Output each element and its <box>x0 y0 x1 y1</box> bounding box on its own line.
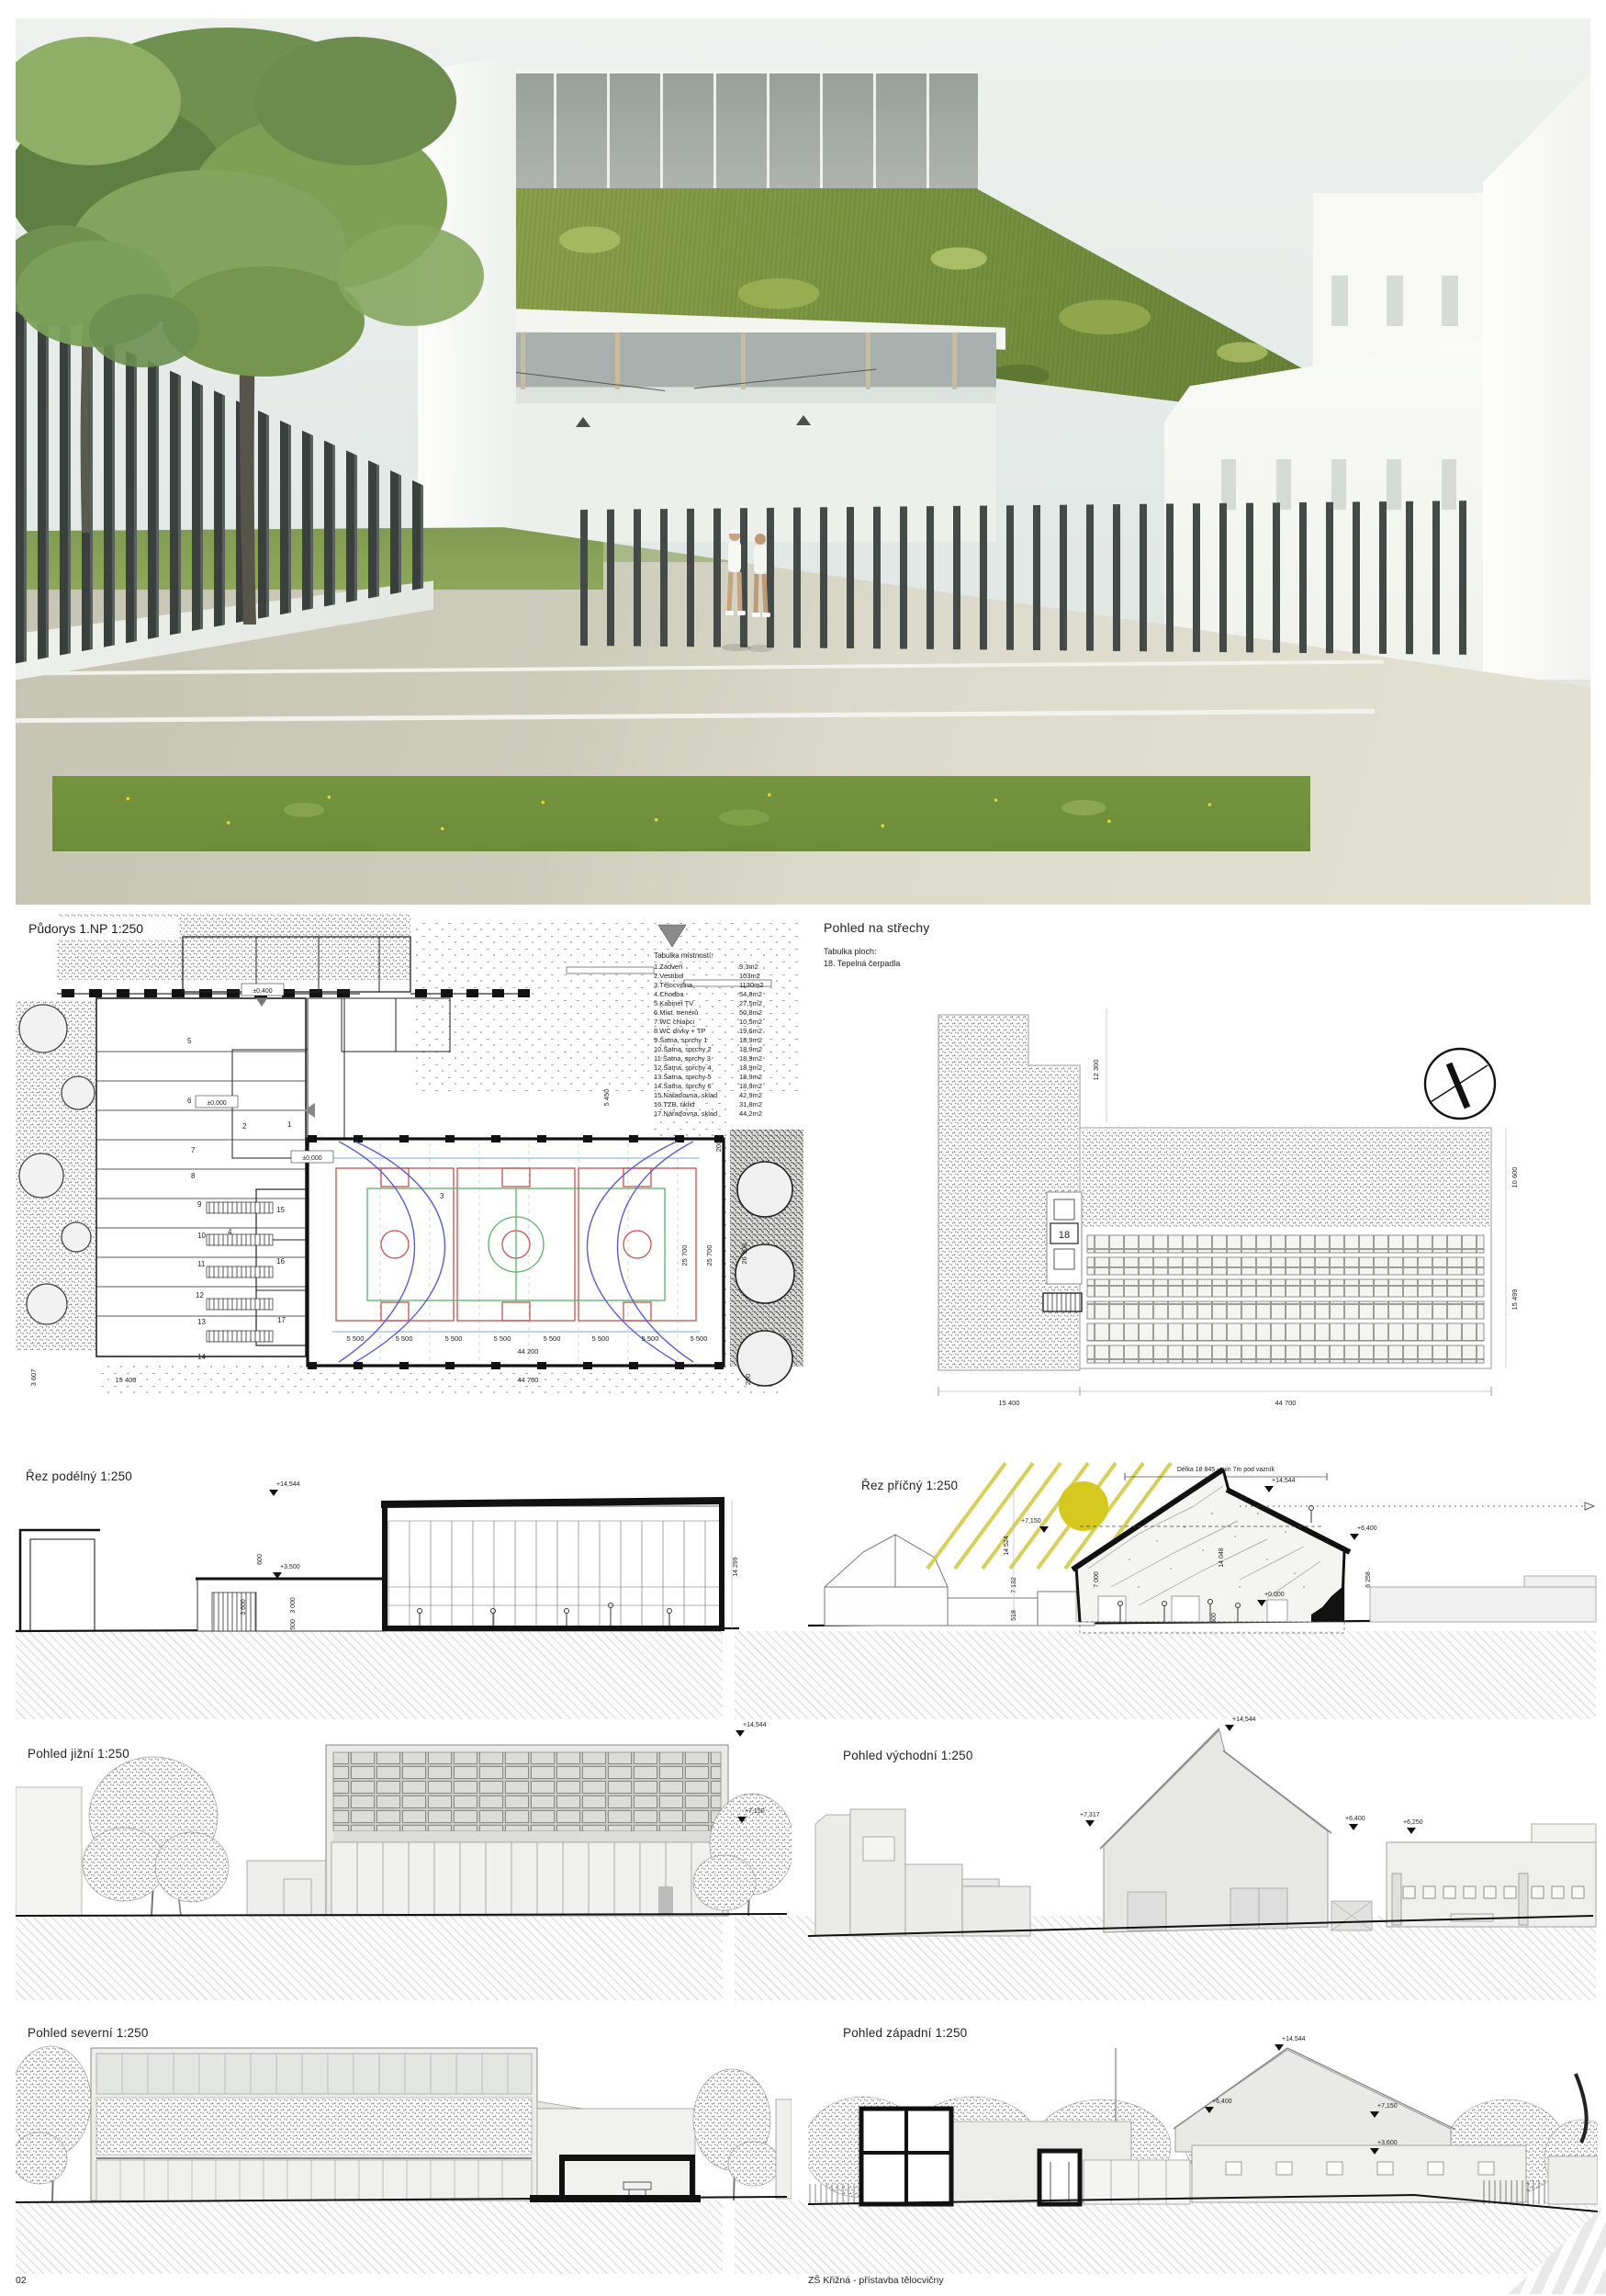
pendant-lamp-icon <box>576 417 590 427</box>
roof-plan-drawing: 18 12 300 10 600 15 499 15 400 44 700 <box>918 974 1602 1433</box>
svg-text:1130m2: 1130m2 <box>739 981 764 989</box>
presentation-sheet: ±0,400 ±0,000 ±0,000 12 34 56 78 910 111… <box>0 0 1606 2296</box>
svg-text:31,8m2: 31,8m2 <box>739 1100 762 1109</box>
svg-text:+14,544: +14,544 <box>1282 2036 1306 2043</box>
render-near-right-building <box>1483 73 1590 680</box>
svg-text:+0,000: +0,000 <box>1264 1592 1285 1598</box>
svg-text:18,9m2: 18,9m2 <box>739 1064 762 1072</box>
svg-text:7: 7 <box>191 1146 196 1154</box>
elevation-west-drawing: +14,544 +6,400 +7,150 +3,600 <box>808 1964 1598 2239</box>
svg-text:10: 10 <box>197 1232 206 1240</box>
svg-text:15 400: 15 400 <box>116 1376 137 1384</box>
svg-text:10 600: 10 600 <box>1511 1167 1519 1188</box>
svg-text:5 500: 5 500 <box>396 1334 413 1343</box>
heat-pump-tag: 18 <box>1059 1230 1070 1241</box>
svg-text:18,9m2: 18,9m2 <box>739 1045 762 1053</box>
svg-text:18,9m2: 18,9m2 <box>739 1073 762 1081</box>
svg-text:500: 500 <box>290 1619 297 1630</box>
svg-text:26 100: 26 100 <box>740 1244 748 1265</box>
elevation-north-drawing <box>16 1964 792 2239</box>
gym-south-facade <box>326 1745 728 1916</box>
svg-text:5 450: 5 450 <box>602 1089 611 1107</box>
svg-text:103m2: 103m2 <box>739 972 760 980</box>
svg-text:600: 600 <box>257 1554 264 1565</box>
svg-text:5 500: 5 500 <box>592 1334 610 1343</box>
project-title: ZŠ Křižná - přístavba tělocvičny <box>808 2275 944 2286</box>
svg-text:6.Míst. trenérů: 6.Míst. trenérů <box>654 1008 698 1017</box>
svg-text:44 700: 44 700 <box>518 1376 539 1384</box>
svg-text:6: 6 <box>187 1097 192 1105</box>
svg-text:18,9m2: 18,9m2 <box>739 1054 762 1063</box>
floor-plan-title: Půdorys 1.NP 1:250 <box>28 921 143 936</box>
svg-text:4: 4 <box>228 1228 232 1236</box>
roof-legend-title: Tabulka ploch: <box>824 947 877 956</box>
west-section-cut-building <box>861 2109 951 2204</box>
svg-text:15 499: 15 499 <box>1511 1289 1519 1311</box>
svg-text:13: 13 <box>197 1318 206 1326</box>
svg-text:8: 8 <box>191 1172 196 1180</box>
svg-text:5 500: 5 500 <box>642 1334 659 1343</box>
svg-text:16: 16 <box>276 1257 285 1266</box>
svg-text:5 500: 5 500 <box>494 1334 511 1343</box>
level-mark: ±0,000 <box>207 1100 226 1107</box>
svg-text:9.Šatna, sprchy 1: 9.Šatna, sprchy 1 <box>654 1036 707 1044</box>
north-compass-icon <box>1425 1049 1495 1119</box>
svg-text:44 700: 44 700 <box>1275 1399 1297 1407</box>
section-long-drawing: +14,544 +3,500 600 3 600 3 000 500 14 29… <box>16 1449 741 1725</box>
svg-text:6 258: 6 258 <box>1365 1571 1372 1588</box>
floor-plan-drawing: ±0,400 ±0,000 ±0,000 12 34 56 78 910 111… <box>16 914 805 1433</box>
render-trees <box>16 18 530 680</box>
svg-text:+7,150: +7,150 <box>1377 2103 1398 2110</box>
svg-text:+14,544: +14,544 <box>1272 1478 1296 1484</box>
svg-text:3.Tělocvična: 3.Tělocvična <box>654 981 693 989</box>
svg-text:15.Nářaďovna, sklad: 15.Nářaďovna, sklad <box>654 1091 717 1099</box>
svg-text:+14,544: +14,544 <box>276 1481 300 1488</box>
svg-text:2.Vestibul: 2.Vestibul <box>654 972 684 980</box>
east-left-buildings <box>815 1809 1030 1936</box>
grass-band-dandelions <box>52 776 1310 851</box>
svg-text:+7,150: +7,150 <box>745 1808 765 1815</box>
svg-text:18,9m2: 18,9m2 <box>739 1082 762 1090</box>
svg-text:+14,544: +14,544 <box>1232 1716 1256 1723</box>
svg-text:3: 3 <box>440 1192 444 1200</box>
svg-text:50,8m2: 50,8m2 <box>739 1008 762 1017</box>
sheet-number: 02 <box>16 2275 27 2286</box>
svg-text:15: 15 <box>276 1206 285 1214</box>
svg-text:14: 14 <box>197 1353 206 1361</box>
svg-text:+7,150: +7,150 <box>1021 1518 1041 1525</box>
elevation-east-drawing: +14,544 +7,317 +6,400 +6,250 <box>808 1706 1598 1964</box>
svg-text:9,3m2: 9,3m2 <box>739 962 758 971</box>
east-right-building <box>1387 1824 1596 1927</box>
svg-text:3 607: 3 607 <box>29 1369 38 1387</box>
svg-text:500: 500 <box>1211 1613 1218 1624</box>
svg-text:7.WC chlapci: 7.WC chlapci <box>654 1018 695 1026</box>
svg-text:27,5m2: 27,5m2 <box>739 999 762 1007</box>
svg-text:44 200: 44 200 <box>518 1347 539 1356</box>
svg-text:16.TZB, úklid: 16.TZB, úklid <box>654 1100 694 1109</box>
heat-pumps: 18 <box>1043 1192 1082 1311</box>
existing-building-cut <box>20 1530 100 1631</box>
svg-text:9: 9 <box>197 1200 202 1209</box>
svg-text:1.Zádveří: 1.Zádveří <box>654 962 684 971</box>
svg-text:15 400: 15 400 <box>999 1399 1020 1407</box>
cross-note: Délka 18 845 - min 7m pod vazník <box>1177 1467 1275 1473</box>
svg-text:11: 11 <box>197 1260 206 1268</box>
svg-text:17.Nářaďovna, sklad: 17.Nářaďovna, sklad <box>654 1109 717 1118</box>
svg-text:13.Šatna, sprchy 5: 13.Šatna, sprchy 5 <box>654 1073 712 1081</box>
exterior-visualization <box>16 18 1590 905</box>
svg-text:18,9m2: 18,9m2 <box>739 1036 762 1044</box>
sun-icon <box>1059 1481 1108 1531</box>
svg-text:12 300: 12 300 <box>1092 1060 1100 1081</box>
svg-text:+6,250: +6,250 <box>1403 1819 1423 1826</box>
north-annex-cut <box>530 2101 701 2202</box>
svg-text:7 132: 7 132 <box>1011 1577 1017 1593</box>
svg-text:5 500: 5 500 <box>445 1334 463 1343</box>
svg-text:200: 200 <box>744 1374 752 1386</box>
svg-text:+14,544: +14,544 <box>743 1722 767 1728</box>
svg-text:14 299: 14 299 <box>733 1557 739 1577</box>
svg-text:5 500: 5 500 <box>347 1334 365 1343</box>
svg-text:14 524: 14 524 <box>1004 1536 1010 1556</box>
gym-north-facade <box>91 2048 537 2200</box>
svg-text:3 600: 3 600 <box>241 1599 247 1615</box>
elevation-south-drawing: +14,544 +7,150 <box>16 1706 792 1964</box>
svg-text:25 700: 25 700 <box>705 1245 713 1266</box>
gym-east-gable <box>1100 1728 1331 1932</box>
svg-text:11.Šatna, sprchy 3: 11.Šatna, sprchy 3 <box>654 1054 711 1063</box>
svg-text:+3,600: +3,600 <box>1377 2140 1398 2146</box>
room-table-title: Tabulka místností: <box>654 951 713 960</box>
section-cross-drawing: Délka 18 845 - min 7m pod vazník <box>808 1449 1598 1725</box>
svg-text:25 700: 25 700 <box>680 1245 689 1266</box>
svg-text:5 500: 5 500 <box>544 1334 561 1343</box>
svg-text:42,9m2: 42,9m2 <box>739 1091 762 1099</box>
svg-text:518: 518 <box>1011 1610 1017 1621</box>
level-mark: ±0,000 <box>302 1155 321 1162</box>
pendant-lamp-icon <box>796 415 811 425</box>
svg-text:14.Šatna, sprchy 6: 14.Šatna, sprchy 6 <box>654 1082 712 1090</box>
east-link <box>1331 1901 1372 1930</box>
svg-text:5: 5 <box>187 1037 192 1045</box>
svg-text:2: 2 <box>242 1122 247 1131</box>
svg-text:+6,400: +6,400 <box>1345 1816 1365 1822</box>
west-cut-portal <box>1039 2151 1080 2204</box>
svg-text:12: 12 <box>196 1291 204 1300</box>
svg-text:+3,500: +3,500 <box>280 1564 300 1570</box>
plan-hall <box>308 1135 724 1369</box>
svg-text:12.Šatna, sprchy 4: 12.Šatna, sprchy 4 <box>654 1064 712 1072</box>
hall-cut <box>381 1497 724 1631</box>
svg-text:5.Kabinet TV: 5.Kabinet TV <box>654 999 693 1007</box>
svg-text:19,6m2: 19,6m2 <box>739 1027 762 1035</box>
section-long-marks: +14,544 +3,500 <box>269 1481 300 1579</box>
svg-text:44,2m2: 44,2m2 <box>739 1109 762 1118</box>
svg-text:1: 1 <box>287 1120 292 1129</box>
svg-text:4.Chodba: 4.Chodba <box>654 990 684 998</box>
render-people <box>709 519 792 657</box>
svg-text:14 048: 14 048 <box>1219 1548 1225 1568</box>
svg-text:5 500: 5 500 <box>691 1334 708 1343</box>
svg-text:+6,400: +6,400 <box>1212 2099 1232 2105</box>
svg-text:54,8m2: 54,8m2 <box>739 990 762 998</box>
svg-text:+6,400: +6,400 <box>1357 1525 1377 1532</box>
roof-plan-title: Pohled na střechy <box>824 920 929 935</box>
far-building-right <box>1370 1576 1596 1622</box>
svg-text:17: 17 <box>277 1316 286 1324</box>
roof-legend-item: 18. Tepelná čerpadla <box>824 959 900 968</box>
svg-text:10.Šatna, sprchy 2: 10.Šatna, sprchy 2 <box>654 1045 712 1053</box>
level-mark: ±0,400 <box>253 988 272 995</box>
svg-text:10,5m2: 10,5m2 <box>739 1018 762 1026</box>
svg-text:8.WC dívky + TP: 8.WC dívky + TP <box>654 1027 705 1035</box>
svg-text:+7,317: +7,317 <box>1080 1812 1100 1818</box>
svg-text:7 000: 7 000 <box>1094 1571 1100 1588</box>
svg-text:200: 200 <box>714 1141 723 1153</box>
svg-text:3 000: 3 000 <box>290 1597 297 1614</box>
